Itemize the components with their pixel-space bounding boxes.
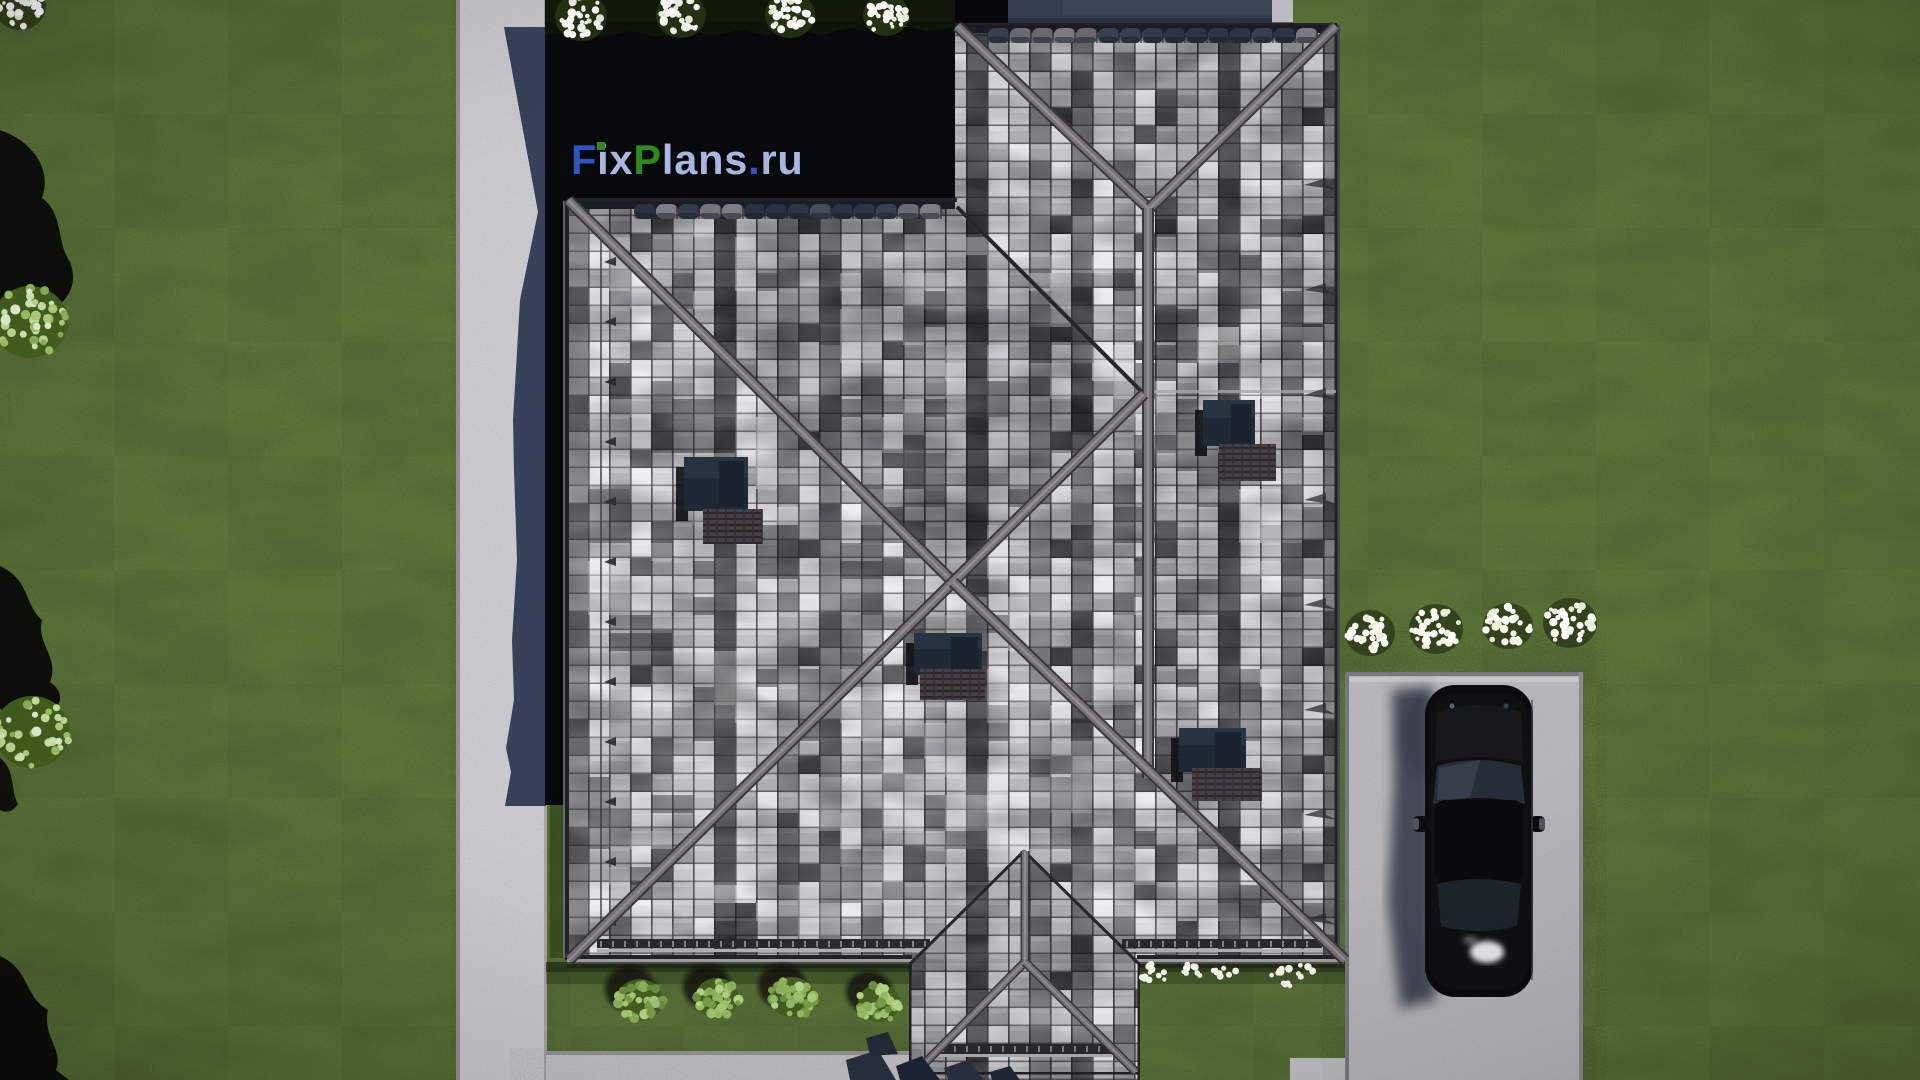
svg-text:FixPlans.ru: FixPlans.ru [571,136,804,183]
